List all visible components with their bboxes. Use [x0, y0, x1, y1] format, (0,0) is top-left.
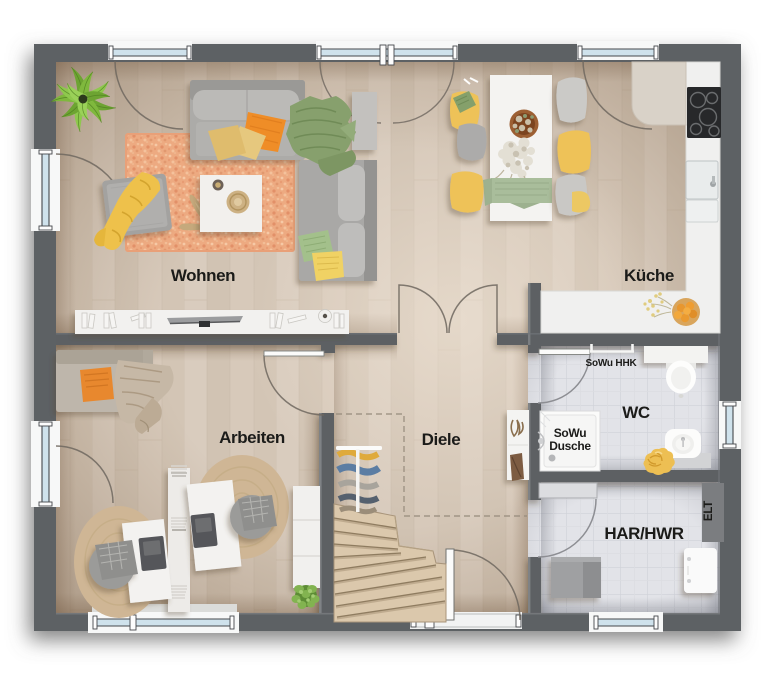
svg-text:Wohnen: Wohnen [171, 266, 235, 285]
svg-text:HAR/HWR: HAR/HWR [604, 524, 683, 543]
svg-text:Dusche: Dusche [549, 439, 591, 453]
svg-text:Diele: Diele [422, 430, 461, 449]
svg-text:Arbeiten: Arbeiten [219, 428, 285, 447]
svg-text:WC: WC [622, 403, 650, 422]
svg-text:Küche: Küche [624, 266, 674, 285]
svg-text:SoWu HHK: SoWu HHK [586, 358, 638, 369]
svg-text:SoWu: SoWu [554, 426, 587, 440]
svg-text:ELT: ELT [703, 501, 715, 521]
